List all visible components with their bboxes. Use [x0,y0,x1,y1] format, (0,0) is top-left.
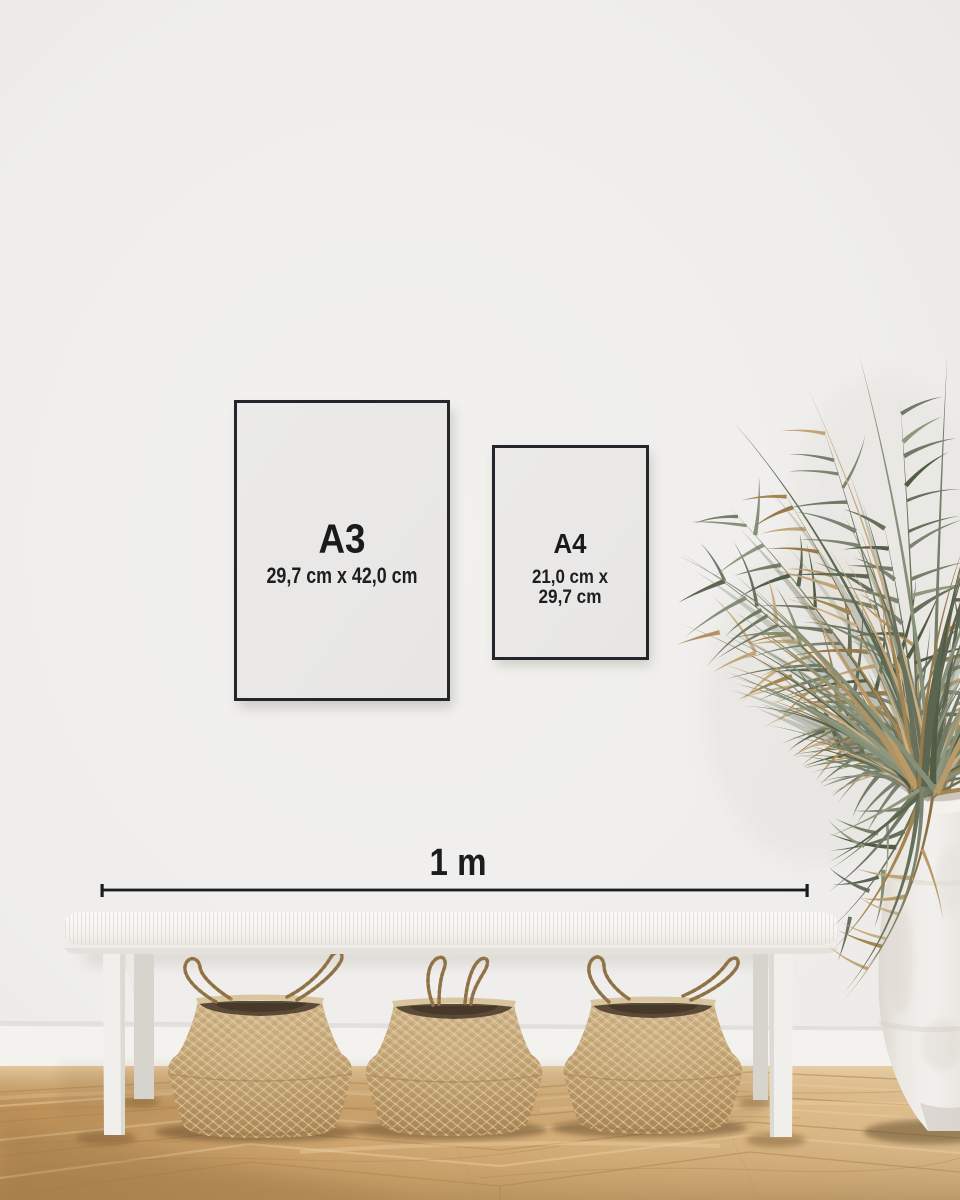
svg-text:29,7 cm: 29,7 cm [539,587,602,608]
svg-text:A4: A4 [554,528,587,559]
svg-text:29,7 cm x 42,0 cm: 29,7 cm x 42,0 cm [267,563,418,588]
svg-text:A3: A3 [319,516,366,562]
svg-text:21,0 cm x: 21,0 cm x [532,567,608,588]
svg-text:1 m: 1 m [430,842,487,884]
